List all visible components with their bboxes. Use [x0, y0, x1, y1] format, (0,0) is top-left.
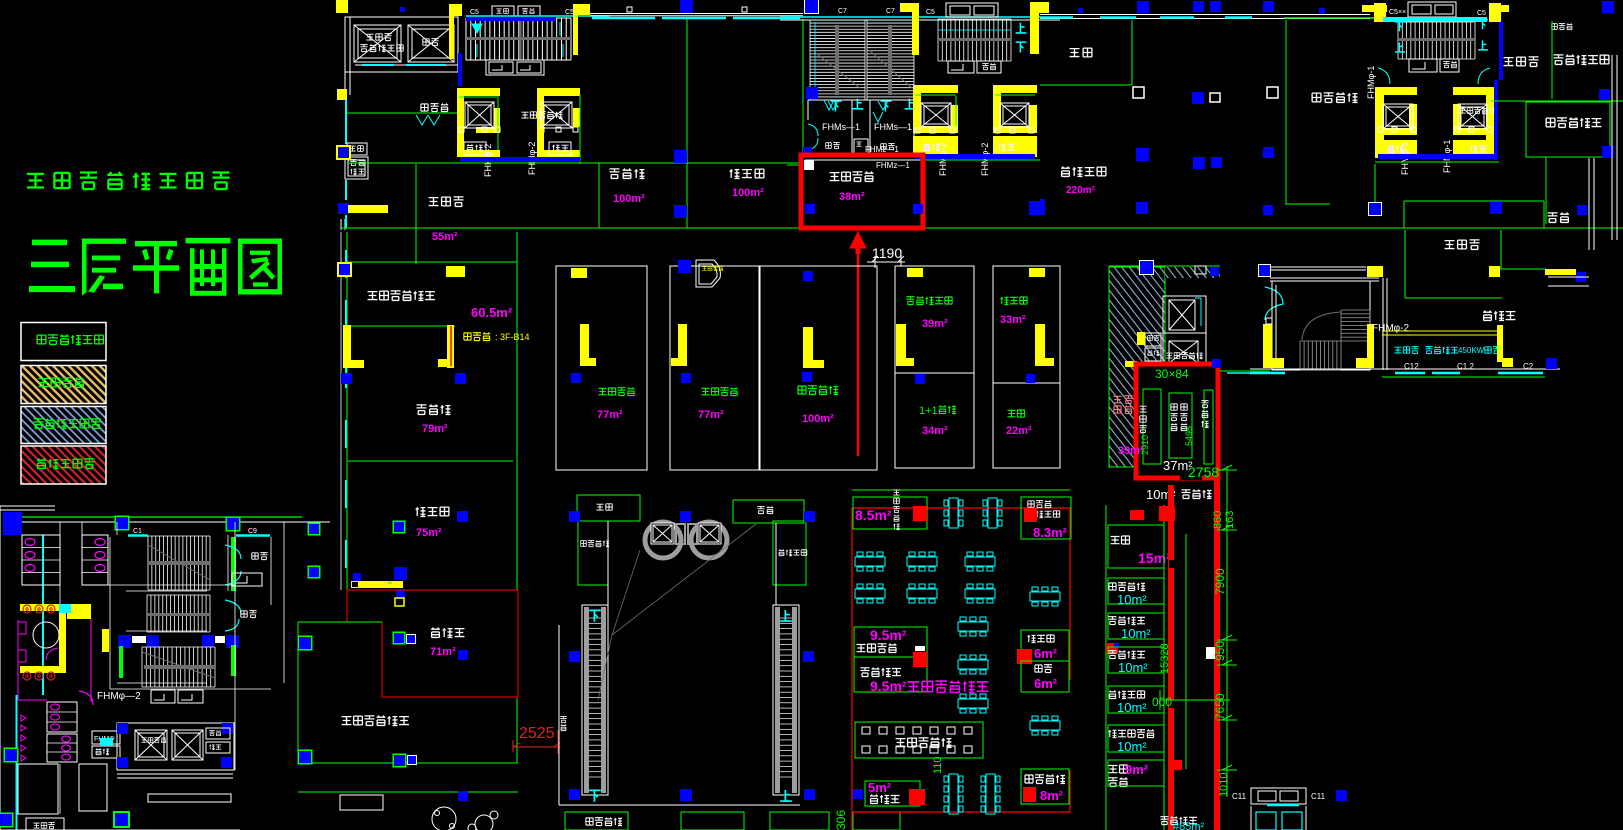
svg-text:6m²: 6m² — [1034, 676, 1058, 691]
svg-text:100m²: 100m² — [613, 193, 645, 205]
svg-text:110: 110 — [932, 756, 944, 774]
svg-text:C5: C5 — [1477, 10, 1486, 17]
svg-text:5m²: 5m² — [868, 780, 892, 795]
svg-text:100m²: 100m² — [802, 413, 834, 425]
svg-text:FHMs—1: FHMs—1 — [874, 122, 912, 132]
svg-text:77m²: 77m² — [698, 409, 724, 421]
svg-text:FHMφ-1: FHMφ-1 — [1366, 66, 1376, 99]
svg-text:6m²: 6m² — [1034, 646, 1058, 661]
svg-text:FHMφ-2: FHMφ-2 — [980, 143, 990, 176]
svg-text:1+1: 1+1 — [919, 405, 938, 417]
svg-text:950: 950 — [1213, 641, 1227, 661]
svg-text:71m²: 71m² — [430, 646, 456, 658]
svg-text:10m²: 10m² — [1117, 739, 1147, 754]
svg-text:FHMz—1: FHMz—1 — [876, 161, 910, 170]
svg-text:C1: C1 — [133, 528, 142, 535]
svg-text:7650: 7650 — [1213, 693, 1227, 720]
svg-text:5495: 5495 — [1184, 426, 1194, 446]
svg-text:FHMs—1: FHMs—1 — [822, 122, 860, 132]
svg-text:2525: 2525 — [519, 725, 555, 742]
svg-text:8.5m²: 8.5m² — [855, 507, 892, 523]
svg-text:10m²: 10m² — [1117, 700, 1147, 715]
svg-text:C5: C5 — [565, 9, 574, 16]
svg-text:C11: C11 — [1232, 792, 1247, 801]
svg-text:9m²: 9m² — [1125, 762, 1149, 777]
svg-text:30×84: 30×84 — [1155, 367, 1189, 381]
svg-text:220m²: 220m² — [1066, 185, 1096, 196]
svg-text:C12: C12 — [1404, 362, 1419, 371]
svg-text:75m²: 75m² — [416, 527, 442, 539]
svg-text:450KW: 450KW — [1458, 346, 1485, 355]
svg-text:1010: 1010 — [1218, 773, 1230, 797]
svg-text:39m²: 39m² — [1118, 445, 1144, 457]
svg-text:C9: C9 — [248, 528, 257, 535]
svg-text:C7: C7 — [886, 8, 895, 15]
svg-text:#85m²: #85m² — [1173, 821, 1205, 830]
svg-text:33m²: 33m² — [1000, 314, 1026, 326]
svg-text:60.5m²: 60.5m² — [471, 305, 513, 320]
svg-text:9.5m²: 9.5m² — [870, 678, 907, 694]
svg-text:306: 306 — [834, 810, 848, 830]
svg-text:C5××: C5×× — [1389, 9, 1406, 16]
svg-text:15m²: 15m² — [1138, 550, 1171, 566]
svg-text:C11: C11 — [1311, 792, 1326, 801]
svg-text:7900: 7900 — [1213, 568, 1227, 595]
svg-text:FHMφ-2: FHMφ-2 — [1372, 323, 1409, 334]
svg-text:79m²: 79m² — [422, 423, 448, 435]
svg-text:860: 860 — [1212, 511, 1224, 529]
svg-text:FHMφ—2: FHMφ—2 — [97, 691, 141, 702]
svg-text:8.3m²: 8.3m² — [1033, 525, 1068, 540]
svg-text:FHMφ-2: FHMφ-2 — [938, 143, 948, 176]
svg-text:10m²: 10m² — [1121, 626, 1151, 641]
svg-text:34m²: 34m² — [922, 425, 948, 437]
svg-text:10m²: 10m² — [1118, 660, 1148, 675]
svg-text:39m²: 39m² — [922, 318, 948, 330]
svg-text:C5: C5 — [470, 9, 479, 16]
svg-text:C2: C2 — [1523, 362, 1534, 371]
svg-text:000: 000 — [1152, 695, 1172, 709]
svg-text:C7: C7 — [838, 8, 847, 15]
svg-text:9.5m²: 9.5m² — [870, 627, 907, 643]
svg-text:1190: 1190 — [872, 245, 902, 261]
svg-text:38m²: 38m² — [839, 191, 865, 203]
svg-text:10m²: 10m² — [1117, 592, 1147, 607]
svg-text:: 3F-B14: : 3F-B14 — [495, 332, 530, 342]
svg-text:C1.2: C1.2 — [1457, 362, 1474, 371]
svg-text:8m²: 8m² — [1040, 788, 1064, 803]
svg-text:C5: C5 — [926, 9, 935, 16]
svg-text:55m²: 55m² — [432, 231, 458, 243]
svg-text:22m²: 22m² — [1006, 425, 1032, 437]
svg-text:100m²: 100m² — [732, 187, 764, 199]
svg-text:2758: 2758 — [1188, 464, 1219, 480]
svg-text:77m²: 77m² — [597, 409, 623, 421]
